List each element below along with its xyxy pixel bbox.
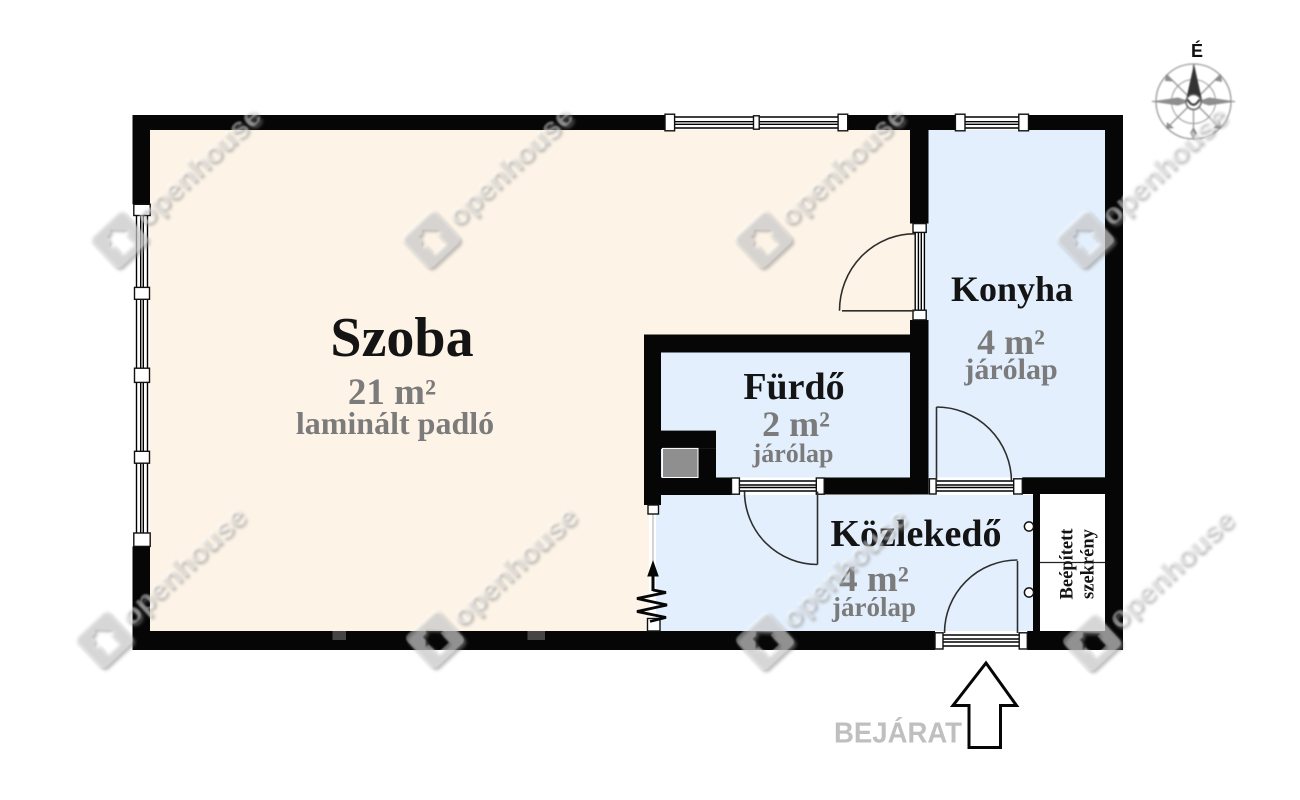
svg-text:járólap: járólap — [752, 439, 834, 468]
svg-text:járólap: járólap — [963, 353, 1057, 386]
svg-text:2 m²: 2 m² — [762, 404, 830, 444]
svg-text:szekrény: szekrény — [1079, 528, 1099, 599]
svg-text:BEJÁRAT: BEJÁRAT — [834, 716, 962, 749]
svg-text:Fürdő: Fürdő — [743, 366, 844, 408]
svg-text:Konyha: Konyha — [951, 269, 1073, 309]
svg-text:laminált padló: laminált padló — [296, 405, 494, 441]
svg-text:Szoba: Szoba — [330, 307, 473, 369]
svg-text:É: É — [1191, 40, 1203, 61]
svg-text:Beépített: Beépített — [1058, 528, 1078, 600]
svg-text:járólap: járólap — [831, 592, 916, 622]
